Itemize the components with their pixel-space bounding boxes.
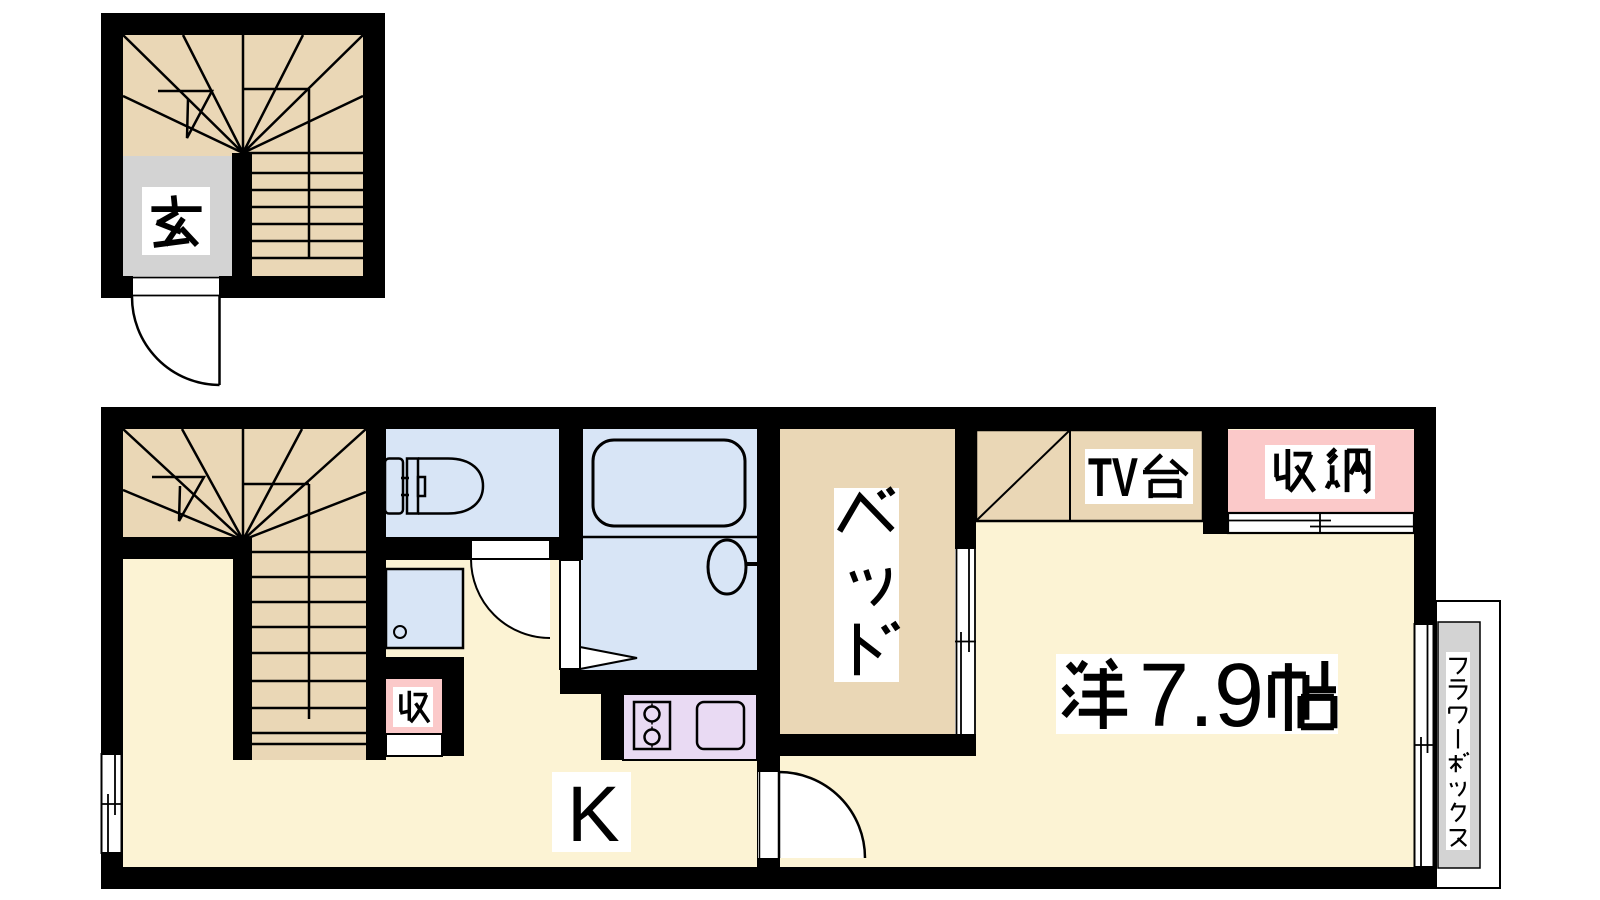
svg-text:7.9: 7.9 xyxy=(1139,646,1264,746)
svg-text:TV: TV xyxy=(1088,446,1138,508)
svg-text:K: K xyxy=(567,769,620,858)
